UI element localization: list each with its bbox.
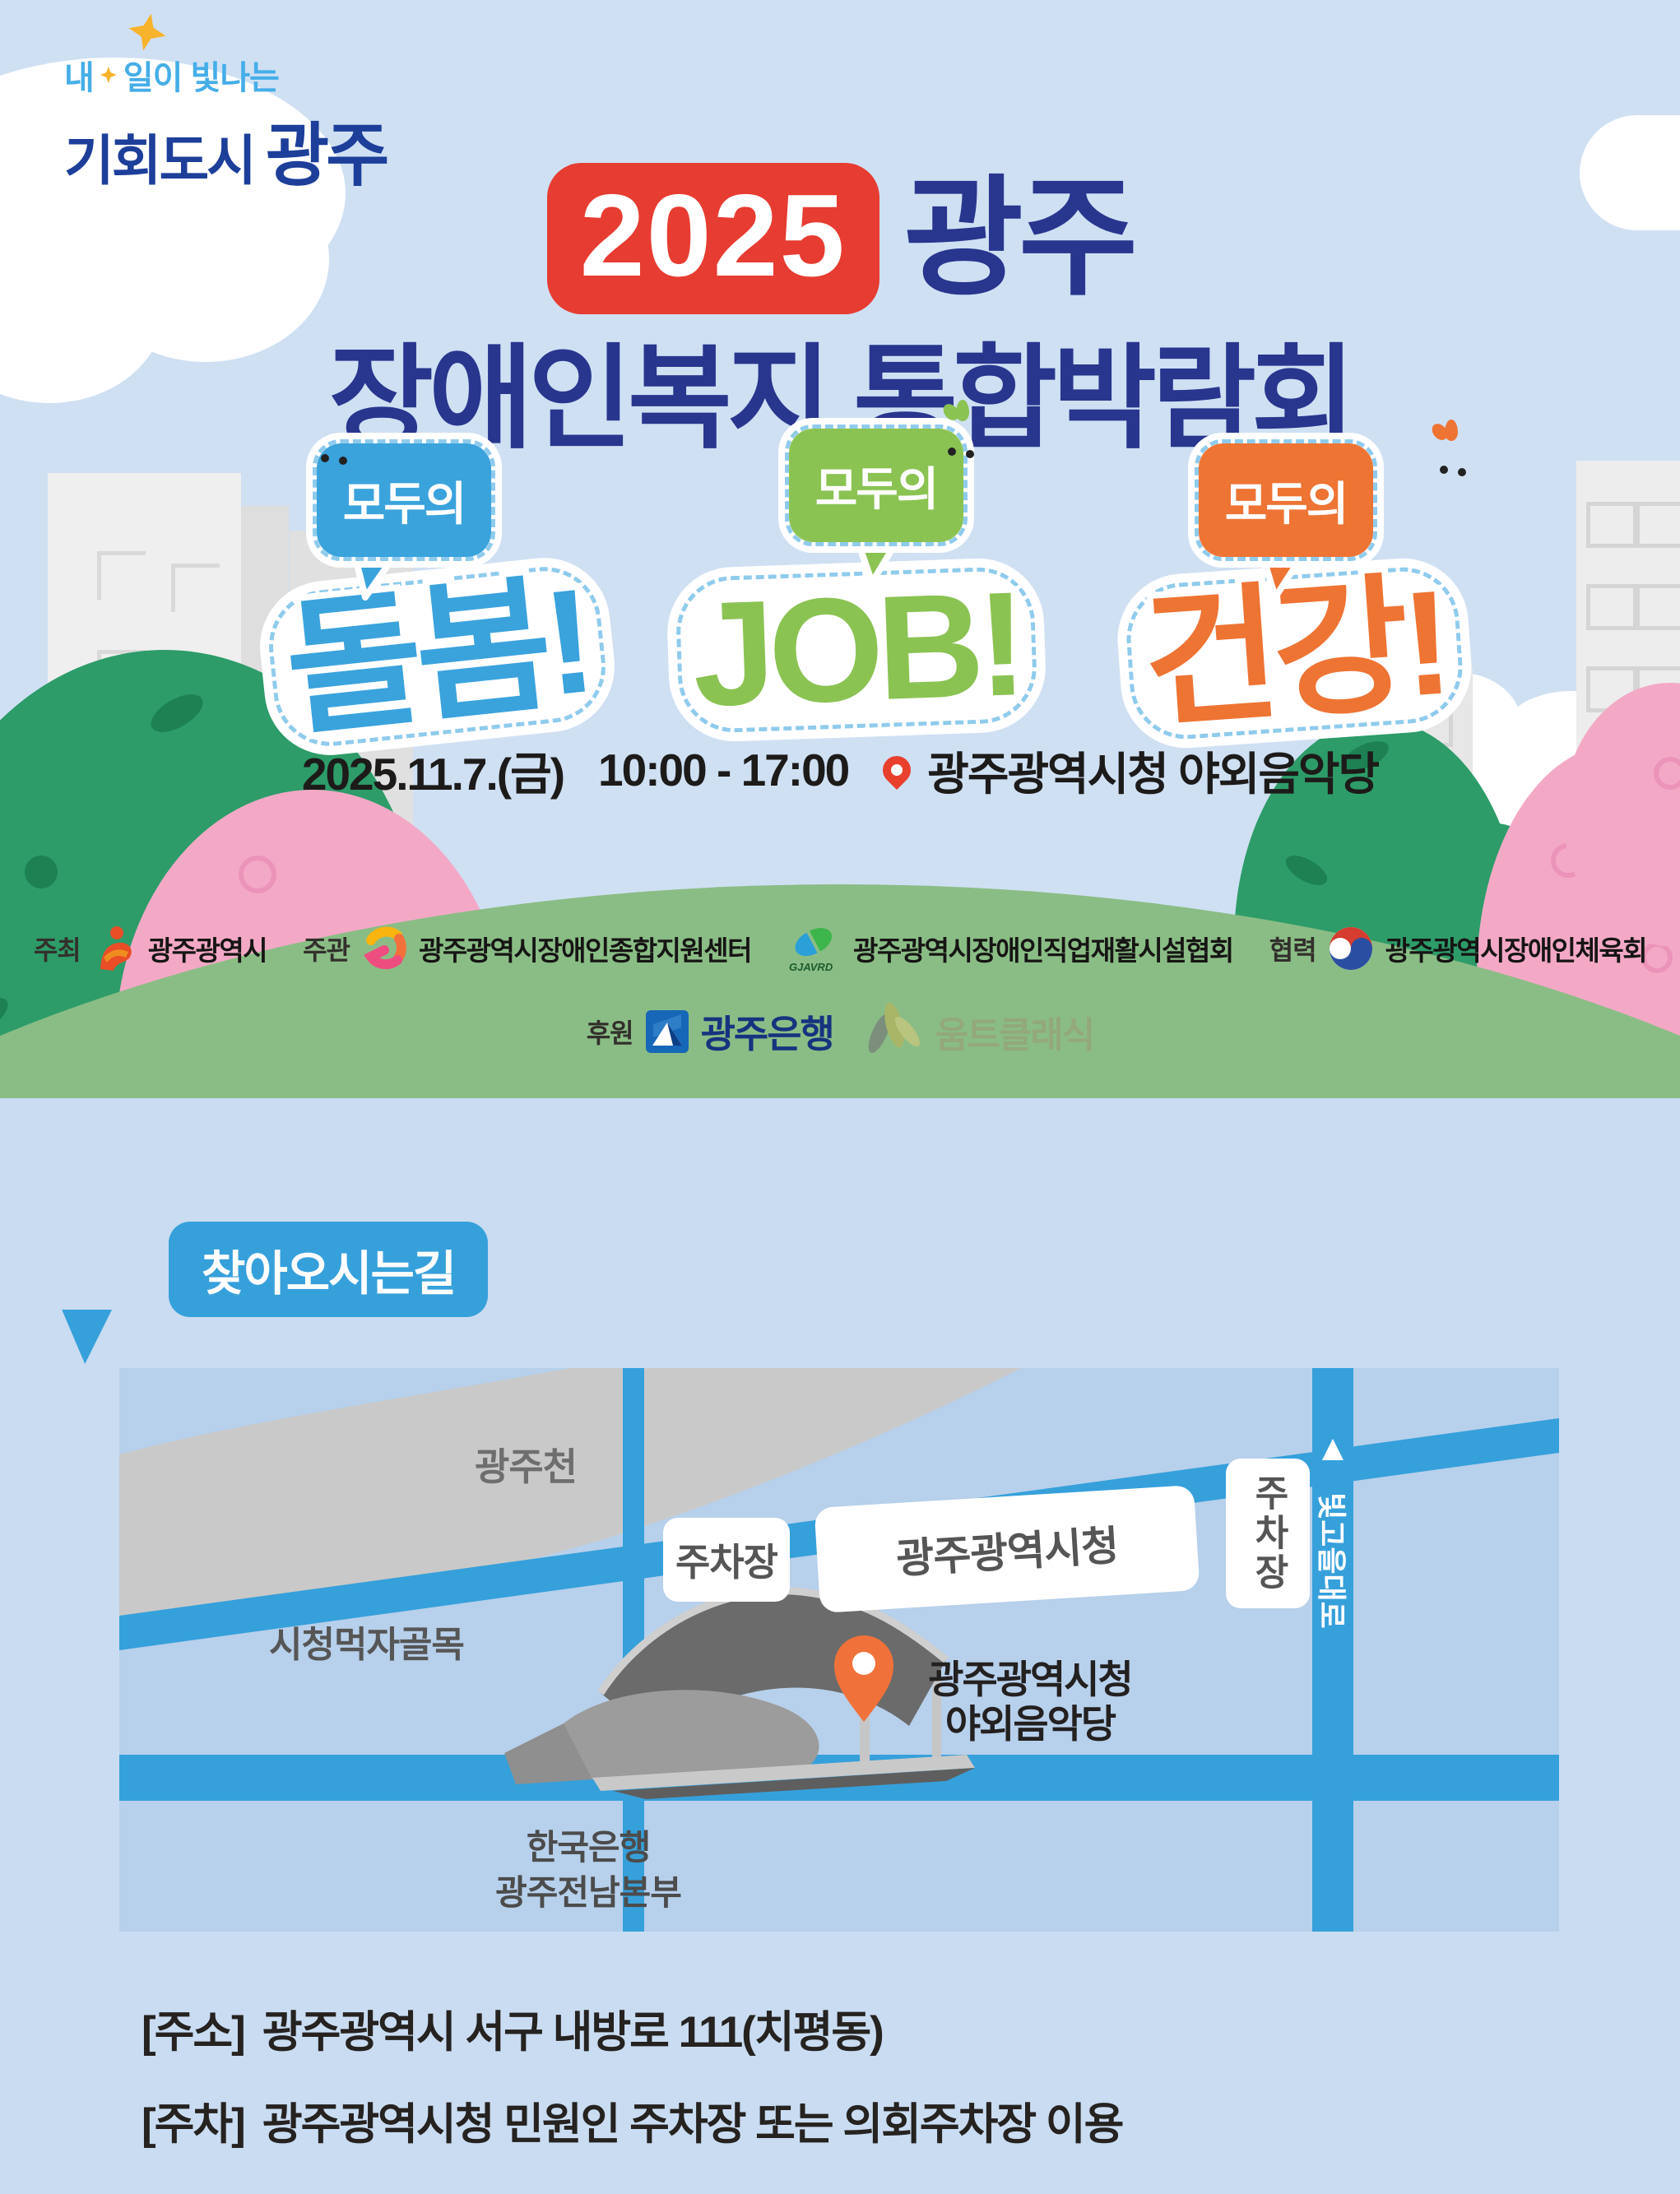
- event-venue-group: 광주광역시청 야외음악당: [883, 737, 1378, 803]
- footer-info: [주소] 광주광역시 서구 내방로 111(치평동) [주차] 광주광역시청 민…: [142, 1997, 1122, 2152]
- speech-bubble: 모두의: [778, 418, 974, 553]
- brand-tagline: 내 일이 빛나는: [64, 51, 386, 99]
- parking-box-2-label: 주차장: [1241, 1474, 1294, 1593]
- address-label: [주소]: [142, 1997, 244, 2060]
- bubble-label: 모두의: [317, 443, 491, 557]
- location-pin-icon: [877, 750, 917, 790]
- sports-association-logo-icon: [1328, 925, 1374, 972]
- bubble-tail: [349, 561, 395, 601]
- window: [97, 551, 146, 600]
- sticker-care: 돌봄! 돌봄! 모두의: [271, 421, 699, 767]
- bank-map-label: 한국은행 광주전남본부: [481, 1825, 695, 1915]
- sticker-word: JOB!: [690, 561, 1023, 738]
- boulevard-label: 빛고을대로: [1316, 1470, 1352, 1651]
- organizer-label: 주관: [303, 930, 350, 967]
- address-line: [주소] 광주광역시 서구 내방로 111(치평동): [142, 1997, 1122, 2060]
- sponsor-label: 후원: [587, 1013, 633, 1051]
- event-poster: 내 일이 빛나는 기회도시 광주 2025 광주 장애인복지 통합박람회 돌봄!…: [0, 0, 1680, 2194]
- bubble-tail: [1257, 561, 1303, 601]
- speech-bubble: 모두의: [306, 433, 502, 568]
- bubble-label: 모두의: [789, 429, 963, 542]
- venue-label-line2: 야외음악당: [894, 1702, 1166, 1746]
- title-city: 광주: [904, 174, 1134, 304]
- brand-name-part1: 기회도시: [64, 117, 254, 196]
- kwangju-bank-logo-icon: [645, 1009, 689, 1054]
- speech-bubble: 모두의: [1188, 433, 1384, 568]
- year-badge: 2025: [547, 163, 879, 314]
- window: [171, 564, 220, 612]
- sprout-icon: [1445, 420, 1458, 441]
- event-venue: 광주광역시청 야외음악당: [927, 737, 1378, 803]
- bubble-face-icon: [948, 448, 956, 456]
- brand-tagline-suffix: 일이 빛나는: [123, 51, 279, 99]
- alley-label: 시청먹자골목: [269, 1615, 464, 1668]
- coop-label: 협력: [1269, 930, 1316, 967]
- venue-label-line1: 광주광역시청: [894, 1658, 1166, 1702]
- organizer-row: 주최 광주광역시 주관 광주광역시장애인종합지원센터: [0, 923, 1680, 974]
- gwangju-city-logo-icon: [92, 925, 137, 972]
- brand-name: 기회도시 광주: [64, 100, 386, 200]
- support-center-logo-icon: [361, 924, 407, 973]
- umt-classic-leaf-icon: [858, 1002, 924, 1061]
- gwangju-city-brand-logo: 내 일이 빛나는 기회도시 광주: [64, 51, 386, 200]
- sponsor2-name: 움트클래식: [935, 1005, 1093, 1058]
- directions-heading: 찾아오시는길: [202, 1235, 455, 1304]
- star-icon: [100, 67, 117, 83]
- organizer1-name: 광주광역시장애인종합지원센터: [419, 929, 751, 968]
- organizer2-name: 광주광역시장애인직업재활시설협회: [853, 929, 1233, 968]
- bubble-face-icon: [321, 454, 329, 462]
- bubble-label: 모두의: [1199, 443, 1373, 557]
- directions-heading-bubble: 찾아오시는길: [169, 1222, 488, 1317]
- sticker-health: 건강! 건강! 모두의: [1125, 420, 1553, 765]
- parking-box-1: 주차장: [663, 1518, 790, 1602]
- river-label: 광주천: [475, 1437, 577, 1491]
- location-map: 광주천 시청먹자골목 주차장 광주광역시청 주차장 빛고을대로 광주광역시청 야…: [119, 1368, 1559, 1932]
- parking-label: [주차]: [142, 2090, 244, 2152]
- sticker-word-wrap: JOB! JOB!: [690, 570, 1023, 730]
- parking-box-2: 주차장: [1226, 1459, 1310, 1608]
- event-time: 10:00 - 17:00: [598, 744, 848, 796]
- sticker-word-wrap: 돌봄! 돌봄!: [280, 567, 596, 745]
- window: [1636, 584, 1680, 630]
- venue-map-label: 광주광역시청 야외음악당: [894, 1658, 1166, 1746]
- brand-tagline-prefix: 내: [64, 51, 94, 99]
- host-label: 주최: [34, 930, 81, 967]
- parking-line: [주차] 광주광역시청 민원인 주차장 또는 의회주차장 이용: [142, 2090, 1122, 2152]
- bubble-tail: [852, 546, 898, 586]
- sponsor-group: 후원 광주은행: [587, 1004, 833, 1059]
- sponsor1-name: 광주은행: [701, 1004, 833, 1059]
- event-date: 2025.11.7.(금): [302, 737, 564, 803]
- sticker-job: JOB! JOB! 모두의: [693, 411, 1121, 757]
- window: [1636, 502, 1680, 548]
- window: [1586, 502, 1637, 548]
- organizer-group-2: GJAVRD 광주광역시장애인직업재활시설협회: [787, 923, 1233, 974]
- gjavrd-logo-icon: GJAVRD: [787, 923, 842, 974]
- address-text: 광주광역시 서구 내방로 111(치평동): [262, 1997, 883, 2060]
- organizer-group-1: 주관 광주광역시장애인종합지원센터: [303, 924, 751, 973]
- star-icon: [125, 10, 170, 55]
- bank-label-line2: 광주전남본부: [481, 1871, 695, 1916]
- coop-name: 광주광역시장애인체육회: [1385, 929, 1646, 968]
- sprout-icon: [956, 400, 969, 421]
- parking-box-1-label: 주차장: [675, 1533, 777, 1587]
- parking-text: 광주광역시청 민원인 주차장 또는 의회주차장 이용: [262, 2090, 1123, 2152]
- brand-name-part2: 광주: [266, 100, 387, 200]
- sponsor-group-2: 움트클래식: [858, 1002, 1093, 1061]
- host-group: 주최 광주광역시: [34, 925, 267, 972]
- gjavrd-logo-text: GJAVRD: [789, 961, 833, 973]
- bubble-face-icon: [1440, 466, 1448, 474]
- cooperation-group: 협력 광주광역시장애인체육회: [1269, 925, 1646, 972]
- bank-label-line1: 한국은행: [481, 1825, 695, 1871]
- event-info-row: 2025.11.7.(금) 10:00 - 17:00 광주광역시청 야외음악당: [0, 737, 1680, 803]
- cityhall-box-label: 광주광역시청: [894, 1513, 1120, 1585]
- host-name: 광주광역시: [148, 929, 267, 968]
- sponsor-row: 후원 광주은행 움트클래식: [0, 1002, 1680, 1061]
- sticker-word: 돌봄!: [278, 558, 596, 754]
- window: [1586, 584, 1637, 630]
